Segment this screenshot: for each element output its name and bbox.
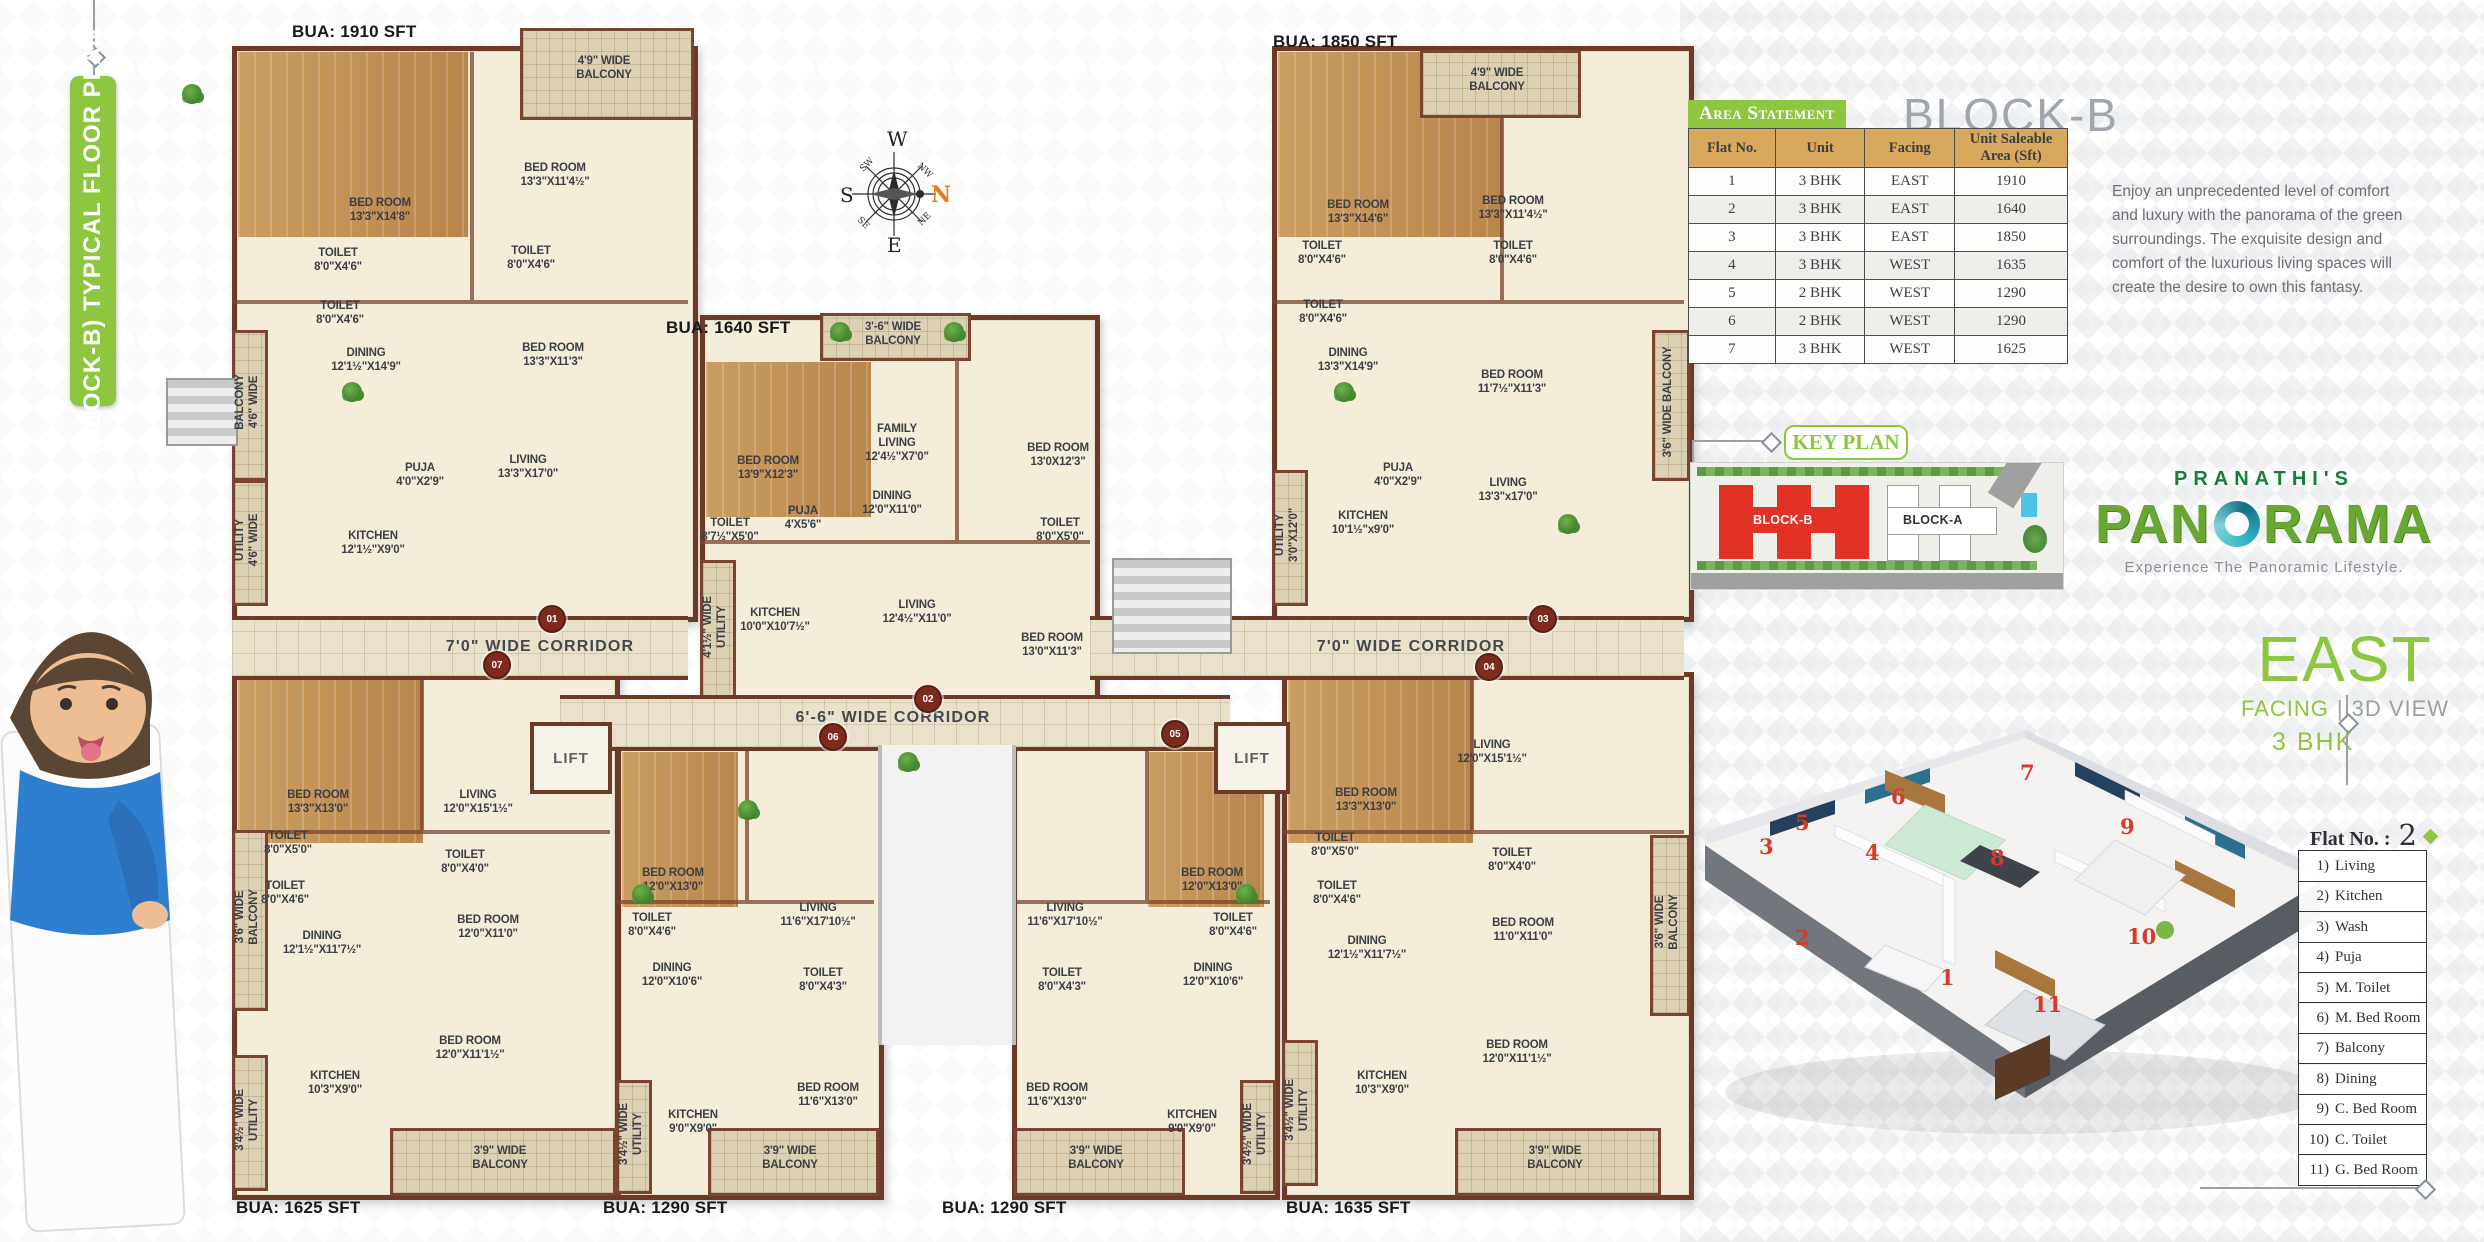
room-label: 4'9" WIDE BALCONY: [1469, 66, 1524, 94]
key-plan-block-a-label: BLOCK-A: [1903, 513, 1963, 527]
room-label: 3'4½" WIDE UTILITY: [1241, 1103, 1269, 1165]
room-label: 4'1½" WIDE UTILITY: [701, 596, 729, 658]
plant-icon: [944, 322, 964, 342]
svg-text:NE: NE: [916, 211, 933, 228]
svg-text:4: 4: [1865, 840, 1880, 865]
svg-text:8: 8: [1990, 845, 2005, 870]
room-label: BED ROOM 13'0X12'3": [1027, 441, 1089, 469]
diamond-green-icon: [2423, 829, 2439, 845]
plant-icon: [182, 84, 202, 104]
corridor-label: 7'0" WIDE CORRIDOR: [446, 638, 635, 656]
trees-strip: [1697, 561, 2037, 570]
bua-label-flat4: BUA: 1635 SFT: [1286, 1198, 1410, 1218]
room-label: 3'4½" WIDE UTILITY: [1283, 1079, 1311, 1141]
room-label: LIVING 12'4½"X11'0": [883, 598, 952, 626]
wood-floor: [706, 362, 871, 517]
room-label: TOILET 8'0"X4'6": [1209, 911, 1257, 939]
connector-line: [1692, 440, 1694, 464]
plant-icon: [632, 884, 652, 904]
cell: 3 BHK: [1775, 196, 1865, 224]
table-row: 43 BHKWEST1635: [1689, 252, 2068, 280]
room-label: 4'9" WIDE BALCONY: [576, 54, 631, 82]
child-photo: [0, 600, 190, 1242]
room-label: BED ROOM 13'9"X12'3": [737, 454, 799, 482]
table-row: 73 BHKWEST1625: [1689, 336, 2068, 364]
room-label: TOILET 8'0"X4'6": [507, 244, 555, 272]
legend-item: 3)Wash: [2298, 911, 2427, 943]
cell: 1850: [1955, 224, 2068, 252]
legend-label: Wash: [2335, 919, 2368, 936]
logo-name-left: PAN: [2095, 493, 2211, 555]
legend-item: 1)Living: [2298, 850, 2427, 882]
legend-label: Balcony: [2335, 1040, 2385, 1057]
legend-label: G. Bed Room: [2335, 1162, 2418, 1179]
cell: WEST: [1865, 336, 1955, 364]
room-label: DINING 12'1½"X14'9": [331, 346, 401, 374]
col-facing: Facing: [1865, 129, 1955, 168]
plant-icon: [1236, 884, 1256, 904]
room-label: BED ROOM 11'6"X13'0": [1026, 1081, 1088, 1109]
legend-no: 2): [2299, 888, 2329, 905]
svg-text:NW: NW: [915, 161, 935, 181]
room-label: LIVING 12'0"X15'1½": [443, 788, 513, 816]
room-label: DINING 12'1½"X11'7½": [283, 929, 361, 957]
col-area: Unit Saleable Area (Sft): [1955, 129, 2068, 168]
cell: 1635: [1955, 252, 2068, 280]
room-label: BED ROOM 13'3"X14'8": [349, 196, 411, 224]
legend-label: C. Bed Room: [2335, 1101, 2417, 1118]
lift-right: LIFT: [1214, 722, 1290, 794]
col-unit: Unit: [1775, 129, 1865, 168]
legend-item: 7)Balcony: [2298, 1033, 2427, 1065]
door-marker-07: 07: [483, 651, 511, 679]
svg-text:6: 6: [1891, 784, 1906, 809]
cell: EAST: [1865, 196, 1955, 224]
compass-icon: W N S E SW NW SE NE: [832, 130, 956, 254]
room-label: DINING 13'3"X14'9": [1318, 346, 1378, 374]
door-marker-02: 02: [914, 685, 942, 713]
area-statement-title: Area Statement: [1688, 100, 1846, 128]
room-label: TOILET 8'7½"X5'0": [701, 516, 758, 544]
room-label: 3'9" WIDE BALCONY: [1068, 1144, 1123, 1172]
legend-no: 11): [2299, 1162, 2329, 1179]
cell: 3 BHK: [1775, 252, 1865, 280]
room-label: TOILET 8'0"X4'0": [441, 848, 489, 876]
svg-text:7: 7: [2020, 760, 2035, 785]
door-marker-03: 03: [1529, 605, 1557, 633]
col-flat-no: Flat No.: [1689, 129, 1776, 168]
room-label: TOILET 8'0"X4'6": [261, 879, 309, 907]
door-marker-05: 05: [1161, 720, 1189, 748]
corridor-label: 7'0" WIDE CORRIDOR: [1317, 638, 1506, 656]
wall-segment: [470, 52, 474, 300]
table-row: 13 BHKEAST1910: [1689, 168, 2068, 196]
logo-swirl-icon: [2214, 501, 2260, 547]
plant-icon: [1334, 382, 1354, 402]
room-label: 3'9" WIDE BALCONY: [762, 1144, 817, 1172]
key-plan-map: BLOCK-B BLOCK-A: [1690, 462, 2064, 590]
legend-title-row: Flat No. : 2: [2310, 818, 2436, 852]
bua-label-flat5: BUA: 1290 SFT: [942, 1198, 1066, 1218]
description-text: Enjoy an unprecedented level of comfort …: [2112, 180, 2404, 300]
bua-label-flat3: BUA: 1850 SFT: [1273, 32, 1397, 52]
room-label: DINING 12'0"X10'6": [1183, 961, 1243, 989]
svg-text:N: N: [931, 182, 951, 208]
plant-icon: [342, 382, 362, 402]
legend-no: 1): [2299, 858, 2329, 875]
bua-label-flat6: BUA: 1290 SFT: [603, 1198, 727, 1218]
cell: 2: [1689, 196, 1776, 224]
room-label: BED ROOM 13'3"X11'3": [522, 341, 584, 369]
room-label: KITCHEN 10'0"X10'7½": [740, 606, 810, 634]
cell: 3 BHK: [1775, 224, 1865, 252]
legend-label: M. Bed Room: [2335, 1010, 2420, 1027]
room-label: BED ROOM 13'3"X14'6": [1327, 198, 1389, 226]
room-label: TOILET 8'0"X4'6": [1313, 879, 1361, 907]
room-label: BED ROOM 11'0"X11'0": [1492, 916, 1554, 944]
room-label: BED ROOM 12'0"X11'0": [457, 913, 519, 941]
room-label: BED ROOM 12'0"X11'1½": [1483, 1038, 1552, 1066]
green-area: [2023, 525, 2047, 553]
lift-left: LIFT: [530, 722, 612, 794]
table-row: 62 BHKWEST1290: [1689, 308, 2068, 336]
bua-label-flat1: BUA: 1910 SFT: [292, 22, 416, 42]
room-label: 3'6" WIDE BALCONY: [1661, 347, 1675, 458]
room-label: DINING 12'1½"X11'7½": [1328, 934, 1406, 962]
door-marker-06: 06: [819, 723, 847, 751]
room-label: KITCHEN 10'3"X9'0": [308, 1069, 362, 1097]
room-label: DINING 12'0"X11'0": [862, 489, 922, 517]
cell: 1625: [1955, 336, 2068, 364]
cell: 1910: [1955, 168, 2068, 196]
road: [1691, 573, 2063, 589]
cell: 1290: [1955, 308, 2068, 336]
svg-text:E: E: [887, 233, 902, 254]
cell: WEST: [1865, 280, 1955, 308]
legend-label: Kitchen: [2335, 888, 2382, 905]
room-label: TOILET 8'0"X4'6": [1489, 239, 1537, 267]
cell: 1290: [1955, 280, 2068, 308]
svg-text:W: W: [887, 130, 908, 151]
key-plan-block-b-label: BLOCK-B: [1753, 513, 1813, 527]
wall-segment: [1145, 745, 1149, 900]
room-label: PUJA 4'0"X2'9": [396, 461, 444, 489]
legend-item: 5)M. Toilet: [2298, 972, 2427, 1004]
cell: 3 BHK: [1775, 336, 1865, 364]
legend-no: 4): [2299, 949, 2329, 966]
room-label: TOILET 8'0"X4'6": [316, 299, 364, 327]
logo-name: PAN RAMA: [2088, 493, 2440, 555]
legend-label: M. Toilet: [2335, 980, 2390, 997]
door-marker-04: 04: [1475, 653, 1503, 681]
cell: 2 BHK: [1775, 308, 1865, 336]
cell: 1: [1689, 168, 1776, 196]
room-label: KITCHEN 12'1½"X9'0": [341, 529, 404, 557]
legend-no: 6): [2299, 1010, 2329, 1027]
legend-label: Living: [2335, 858, 2375, 875]
room-label: TOILET 8'0"X4'6": [314, 246, 362, 274]
banner-title: (BLOCK-B) TYPICAL FLOOR PLAN: [79, 28, 107, 454]
room-label: UTILITY 3'0"X12'0": [1273, 508, 1301, 562]
legend-item: 10)C. Toilet: [2298, 1124, 2427, 1156]
cell: WEST: [1865, 308, 1955, 336]
legend-no: 10): [2299, 1132, 2329, 1149]
room-label: TOILET 8'0"X4'6": [1299, 298, 1347, 326]
table-row: 33 BHKEAST1850: [1689, 224, 2068, 252]
room-label: BED ROOM 13'3"X11'4½": [521, 161, 590, 189]
room-label: KITCHEN 10'3"X9'0": [1355, 1069, 1409, 1097]
room-label: LIVING 13'3"x17'0": [1479, 476, 1538, 504]
connector-line: [2346, 695, 2348, 785]
room-label: 3'6" WIDE BALCONY: [233, 889, 261, 944]
bua-label-flat2: BUA: 1640 SFT: [666, 318, 790, 338]
logo-name-right: RAMA: [2263, 493, 2433, 555]
legend-no: 8): [2299, 1071, 2329, 1088]
room-label: TOILET 8'0"X5'0": [264, 829, 312, 857]
legend-no: 3): [2299, 919, 2329, 936]
svg-text:SE: SE: [855, 215, 871, 231]
room-label: TOILET 8'0"X4'6": [628, 911, 676, 939]
room-label: KITCHEN 9'0"X9'0": [668, 1108, 718, 1136]
room-label: 3'4½" WIDE UTILITY: [617, 1103, 645, 1165]
cell: EAST: [1865, 168, 1955, 196]
svg-text:5: 5: [1795, 810, 1810, 835]
svg-text:S: S: [840, 183, 854, 207]
table-row: 23 BHKEAST1640: [1689, 196, 2068, 224]
room-label: LIVING 12'0"X15'1½": [1457, 738, 1527, 766]
cell: 1640: [1955, 196, 2068, 224]
legend-item: 4)Puja: [2298, 942, 2427, 974]
room-label: BALCONY 4'6" WIDE: [233, 374, 261, 429]
cell: 6: [1689, 308, 1776, 336]
room-label: TOILET 8'0"X4'3": [1038, 966, 1086, 994]
svg-text:1: 1: [1940, 965, 1955, 990]
room-label: LIVING 11'6"X17'10½": [1027, 901, 1102, 929]
legend-list: 1)Living 2)Kitchen 3)Wash 4)Puja 5)M. To…: [2298, 852, 2427, 1186]
brochure-page: (BLOCK-B) TYPICAL FLOOR PLAN: [0, 0, 2484, 1242]
room-label: BED ROOM 13'3"X13'0": [287, 788, 349, 816]
legend-title: Flat No. :: [2310, 828, 2391, 851]
facing-label: FACING: [2241, 696, 2329, 721]
room-label: PUJA 4'0"X2'9": [1374, 461, 1422, 489]
room-label: BED ROOM 13'0"X11'3": [1021, 631, 1083, 659]
block-b-banner: (BLOCK-B) TYPICAL FLOOR PLAN: [70, 76, 116, 406]
room-label: TOILET 8'0"X5'0": [1311, 831, 1359, 859]
entry-stairs: [166, 378, 238, 446]
svg-text:3: 3: [1759, 834, 1774, 859]
legend-no: 7): [2299, 1040, 2329, 1057]
east-facing-3d-view: 1 2 3 4 5 6 7 8 9 10 11: [1695, 730, 2340, 1145]
wall-segment: [420, 672, 424, 830]
legend-item: 6)M. Bed Room: [2298, 1002, 2427, 1034]
plant-icon: [898, 752, 918, 772]
cell: 7: [1689, 336, 1776, 364]
cell: 4: [1689, 252, 1776, 280]
legend-item: 2)Kitchen: [2298, 881, 2427, 913]
light-shaft: [878, 745, 1016, 1045]
cell: 3 BHK: [1775, 168, 1865, 196]
legend-label: Dining: [2335, 1071, 2377, 1088]
room-label: 3'9" WIDE BALCONY: [472, 1144, 527, 1172]
legend-label: Puja: [2335, 949, 2362, 966]
wall-segment: [232, 300, 688, 304]
east-heading: EAST: [2230, 622, 2460, 696]
plant-icon: [1558, 514, 1578, 534]
legend-item: 11)G. Bed Room: [2298, 1154, 2427, 1186]
room-label: KITCHEN 9'0"X9'0": [1167, 1108, 1217, 1136]
view-3d-label: 3D VIEW: [2352, 696, 2449, 721]
room-label: BED ROOM 13'3"X13'0": [1335, 786, 1397, 814]
legend-no: 5): [2299, 980, 2329, 997]
room-label: 3'-6" WIDE BALCONY: [865, 320, 921, 348]
cell: 3: [1689, 224, 1776, 252]
room-label: TOILET 8'0"X5'0": [1036, 516, 1084, 544]
bua-label-flat7: BUA: 1625 SFT: [236, 1198, 360, 1218]
room-label: 3'9" WIDE BALCONY: [1527, 1144, 1582, 1172]
cell: EAST: [1865, 224, 1955, 252]
plant-icon: [738, 800, 758, 820]
logo-tagline: Experience The Panoramic Lifestyle.: [2088, 559, 2440, 576]
room-label: FAMILY LIVING 12'4½"X7'0": [865, 422, 928, 464]
key-plan-label: KEY PLAN: [1784, 425, 1908, 460]
room-label: LIVING 13'3"X17'0": [498, 453, 558, 481]
table-header-row: Flat No. Unit Facing Unit Saleable Area …: [1689, 129, 2068, 168]
room-label: PUJA 4'X5'6": [785, 504, 821, 532]
pool: [2021, 493, 2037, 517]
plant-icon: [830, 322, 850, 342]
svg-text:9: 9: [2120, 814, 2135, 839]
wood-floor: [1288, 678, 1473, 843]
logo-block: PRANATHI'S PAN RAMA Experience The Panor…: [2088, 468, 2440, 576]
wood-floor: [238, 678, 423, 843]
cell: 2 BHK: [1775, 280, 1865, 308]
room-label: TOILET 8'0"X4'3": [799, 966, 847, 994]
svg-text:10: 10: [2127, 924, 2156, 949]
room-label: DINING 12'0"X10'6": [642, 961, 702, 989]
door-marker-01: 01: [538, 605, 566, 633]
room-label: UTILITY 4'6" WIDE: [233, 514, 261, 566]
area-statement-table: Flat No. Unit Facing Unit Saleable Area …: [1688, 128, 2068, 364]
legend-label: C. Toilet: [2335, 1132, 2387, 1149]
room-label: LIVING 11'6"X17'10½": [780, 901, 855, 929]
connector-line: [1692, 440, 1766, 442]
staircase: [1112, 558, 1232, 654]
wall-segment: [745, 745, 749, 900]
svg-text:2: 2: [1795, 925, 1810, 950]
room-label: 3'4½" WIDE UTILITY: [233, 1089, 261, 1151]
cell: WEST: [1865, 252, 1955, 280]
logo-brand: PRANATHI'S: [2088, 468, 2440, 491]
legend-item: 8)Dining: [2298, 1063, 2427, 1095]
room-label: BED ROOM 12'0"X13'0": [1181, 866, 1243, 894]
cell: 5: [1689, 280, 1776, 308]
room-label: BED ROOM 13'3"X11'4½": [1479, 194, 1548, 222]
svg-text:SW: SW: [858, 156, 877, 175]
svg-text:11: 11: [2033, 992, 2062, 1017]
room-label: KITCHEN 10'1½"x9'0": [1332, 509, 1394, 537]
room-label: 3'6" WIDE BALCONY: [1653, 894, 1681, 949]
room-label: TOILET 8'0"X4'6": [1298, 239, 1346, 267]
table-row: 52 BHKWEST1290: [1689, 280, 2068, 308]
legend-no: 9): [2299, 1101, 2329, 1118]
room-label: TOILET 8'0"X4'0": [1488, 846, 1536, 874]
connector-line: [2200, 1187, 2422, 1189]
room-label: BED ROOM 12'0"X11'1½": [436, 1034, 505, 1062]
room-label: BED ROOM 11'6"X13'0": [797, 1081, 859, 1109]
legend-item: 9)C. Bed Room: [2298, 1094, 2427, 1126]
legend-flat-number: 2: [2399, 818, 2417, 852]
room-label: BED ROOM 11'7½"X11'3": [1478, 368, 1546, 396]
trees-strip: [1697, 467, 2027, 476]
